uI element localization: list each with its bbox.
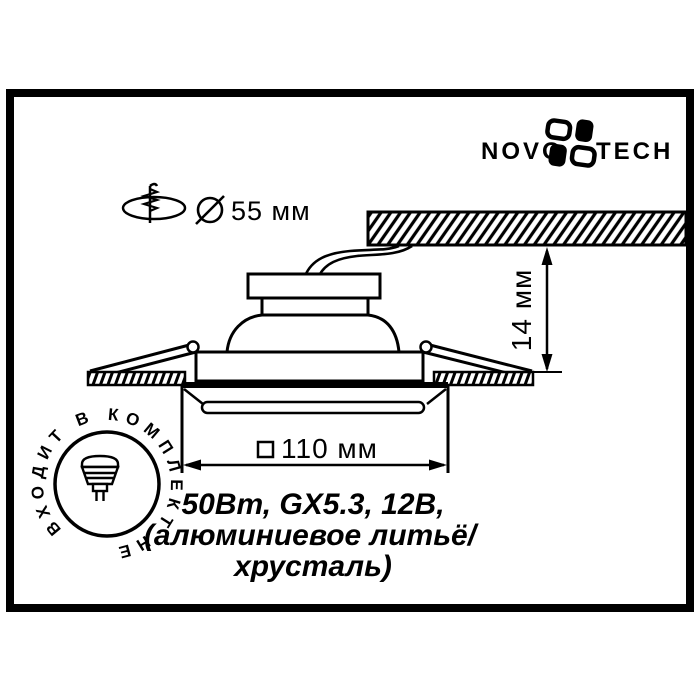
arrowhead-up — [542, 247, 553, 265]
spring-pivot-right — [421, 342, 432, 353]
ceiling-strip-left — [88, 372, 185, 385]
dimension-face-width: 110 мм — [183, 433, 447, 471]
spring-pivot-left — [188, 342, 199, 353]
ceiling-panel-section — [368, 212, 686, 245]
ceiling-strip-right — [434, 372, 533, 385]
spec-line-1: 50Вт, GX5.3, 12В, — [181, 488, 444, 521]
arrowhead-left — [183, 460, 201, 471]
drawing-canvas: NOVO TECH 55 мм — [0, 0, 700, 700]
arrowhead-down — [542, 354, 553, 372]
fixture-diagram: NOVO TECH 55 мм — [0, 0, 700, 700]
lamp-holder-neck — [262, 298, 368, 315]
housing-dome — [227, 315, 399, 352]
cutout-note: 55 мм — [123, 184, 311, 226]
ceiling-hole-drill-icon — [123, 184, 185, 223]
diameter-symbol-icon — [196, 196, 224, 224]
spec-line-3: хрусталь) — [232, 550, 392, 583]
face-width-value: 110 мм — [281, 433, 378, 464]
fixture-body — [196, 274, 423, 381]
recessed-can — [196, 352, 423, 381]
arrowhead-right — [429, 460, 447, 471]
supply-wire — [305, 246, 412, 276]
spec-text-block: 50Вт, GX5.3, 12В, (алюминиевое литьё/ хр… — [144, 488, 479, 583]
dimension-recess-depth: 14 мм — [506, 247, 562, 372]
lamp-not-included-badge: ВХОДИТ В КОМПЛЕКТ НЕ — [28, 405, 186, 562]
brand-text-right: TECH — [596, 138, 673, 165]
glass-diffuser-edge — [202, 402, 424, 413]
spec-line-2: (алюминиевое литьё/ — [144, 519, 479, 552]
recess-depth-value: 14 мм — [506, 269, 537, 351]
terminal-block — [248, 274, 380, 298]
brand-logo: NOVO TECH — [481, 115, 673, 171]
square-symbol-icon — [258, 442, 273, 457]
cutout-diameter-value: 55 мм — [231, 196, 311, 226]
